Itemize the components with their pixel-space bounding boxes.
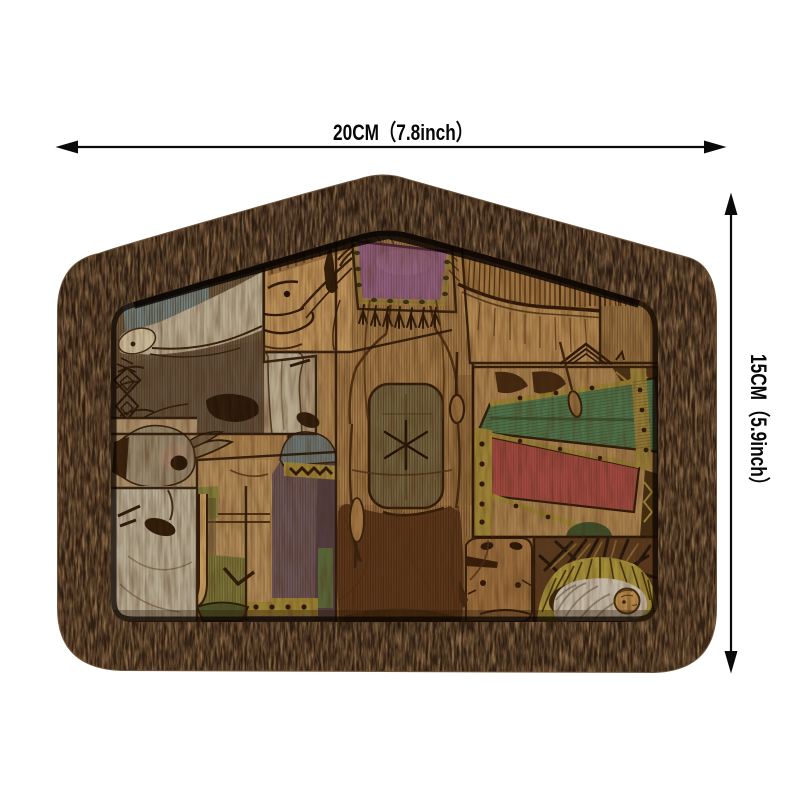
svg-text:20CM（7.8inch）: 20CM（7.8inch） <box>333 120 473 145</box>
svg-text:15CM（5.9inch）: 15CM（5.9inch） <box>746 354 771 494</box>
